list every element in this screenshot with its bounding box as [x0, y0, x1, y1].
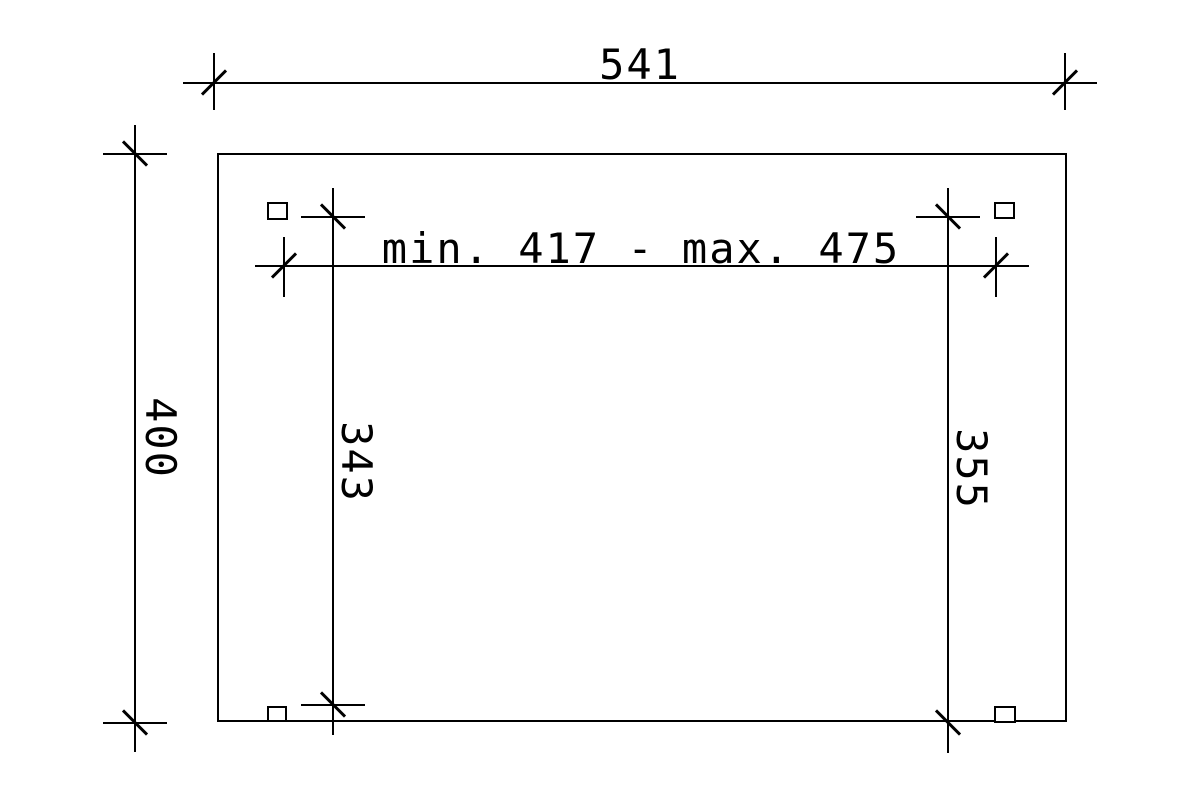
post-bottom-right [994, 706, 1016, 723]
post-top-right [994, 202, 1015, 219]
dimension-label-overall-width: 541 [490, 44, 790, 86]
post-top-left [267, 202, 288, 220]
dimension-label-clear-width: min. 417 - max. 475 [291, 228, 991, 270]
dimension-label-inner-depth-left: 343 [335, 421, 377, 503]
technical-drawing: 541 400 min. 417 - max. 475 343 355 [0, 0, 1200, 800]
dimension-label-inner-depth-right: 355 [950, 428, 992, 510]
post-bottom-left [267, 706, 287, 722]
dimension-label-overall-depth: 400 [139, 397, 181, 479]
